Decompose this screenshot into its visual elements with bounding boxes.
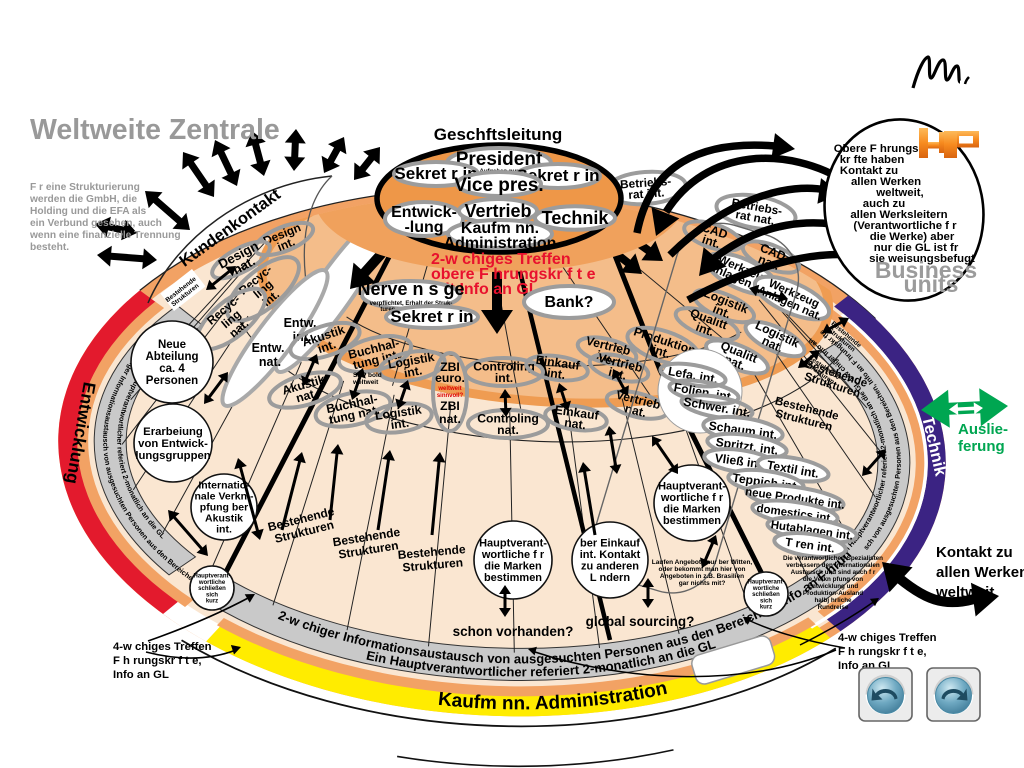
svg-text:Die verantwortlichen Spezialis: Die verantwortlichen Spezialisten <box>783 555 883 562</box>
svg-text:Technik: Technik <box>542 208 610 228</box>
svg-text:L ndern: L ndern <box>590 572 630 584</box>
svg-text:int.: int. <box>495 371 513 385</box>
svg-text:Geschftsleitung: Geschftsleitung <box>434 125 562 144</box>
svg-text:Entwicklung und: Entwicklung und <box>808 583 859 590</box>
svg-text:die Marken: die Marken <box>484 561 542 573</box>
svg-text:Sekret r in: Sekret r in <box>390 307 473 326</box>
svg-text:F r eine Strukturierung: F r eine Strukturierung <box>30 182 140 193</box>
svg-text:Holding und die EFA als: Holding und die EFA als <box>30 206 147 217</box>
svg-text:allen Werken: allen Werken <box>936 564 1024 581</box>
svg-text:Auslie-: Auslie- <box>958 421 1008 438</box>
svg-text:schließen: schließen <box>198 586 226 592</box>
svg-text:F h rungskr f t e,: F h rungskr f t e, <box>838 646 927 658</box>
svg-text:Vice pres.: Vice pres. <box>454 175 543 196</box>
svg-text:weltweit: weltweit <box>935 584 994 601</box>
svg-text:verbessern den internationalen: verbessern den internationalen <box>786 562 880 569</box>
svg-text:F h rungskr f t e,: F h rungskr f t e, <box>113 655 202 667</box>
svg-text:Weltweite Zentrale: Weltweite Zentrale <box>30 114 280 146</box>
svg-text:Personen: Personen <box>146 375 198 387</box>
svg-text:bestimmen: bestimmen <box>663 515 721 527</box>
svg-text:ferung: ferung <box>958 438 1005 455</box>
svg-text:4-w chiges Treffen: 4-w chiges Treffen <box>113 641 212 653</box>
svg-text:4-w chiges Treffen: 4-w chiges Treffen <box>838 632 937 644</box>
svg-text:wortliche: wortliche <box>752 586 780 592</box>
svg-text:ZBI: ZBI <box>440 399 460 413</box>
svg-text:euro.: euro. <box>435 371 465 385</box>
svg-text:int.: int. <box>390 416 410 432</box>
svg-text:Hauptverant-: Hauptverant- <box>479 538 547 550</box>
svg-text:halbj hrliche: halbj hrliche <box>814 597 852 604</box>
svg-text:die Verkn pfung von: die Verkn pfung von <box>803 576 863 583</box>
svg-text:Bank?: Bank? <box>545 294 594 311</box>
svg-text:Hauptverant-: Hauptverant- <box>658 481 726 493</box>
svg-text:wortliche: wortliche <box>198 580 226 586</box>
svg-text:int.: int. <box>216 524 232 536</box>
svg-text:units: units <box>904 271 959 297</box>
svg-text:ber Einkauf: ber Einkauf <box>580 538 640 550</box>
svg-text:nat.: nat. <box>439 412 461 426</box>
svg-text:nat.: nat. <box>563 415 586 432</box>
svg-text:Nerve n s ge: Nerve n s ge <box>357 279 464 299</box>
svg-text:von Entwick-: von Entwick- <box>138 438 208 450</box>
svg-text:nat.: nat. <box>259 355 281 369</box>
svg-text:kurz: kurz <box>206 599 218 605</box>
svg-text:Vertrieb: Vertrieb <box>464 201 531 221</box>
svg-text:Abteilung: Abteilung <box>145 351 198 363</box>
svg-text:sich: sich <box>206 592 218 598</box>
svg-text:lungsgruppen: lungsgruppen <box>135 450 210 462</box>
svg-text:weltweit: weltweit <box>437 386 461 392</box>
svg-text:Produktion-Ausland: Produktion-Ausland <box>803 590 863 597</box>
svg-text:-lung: -lung <box>404 219 443 236</box>
svg-text:int. Kontakt: int. Kontakt <box>580 549 641 561</box>
svg-text:Hauptverant-: Hauptverant- <box>747 580 784 586</box>
svg-text:Kontakt zu: Kontakt zu <box>936 544 1013 561</box>
svg-text:werden die GmbH, die: werden die GmbH, die <box>29 194 137 205</box>
svg-text:sich: sich <box>760 598 772 604</box>
svg-text:kurz: kurz <box>760 605 772 611</box>
svg-text:Austausch und sind auch f r: Austausch und sind auch f r <box>791 569 876 576</box>
svg-text:schließen: schließen <box>752 592 780 598</box>
svg-text:wenn eine finanzielle Trennung: wenn eine finanzielle Trennung <box>29 230 181 241</box>
svg-text:global sourcing?: global sourcing? <box>586 614 695 629</box>
svg-text:besteht.: besteht. <box>30 242 69 253</box>
svg-text:Info an GL: Info an GL <box>113 669 169 681</box>
svg-text:wortliche f r: wortliche f r <box>660 492 724 504</box>
svg-text:ein Verbund gesehen, auch: ein Verbund gesehen, auch <box>30 218 162 229</box>
svg-text:int.: int. <box>546 366 566 382</box>
svg-text:Entw.: Entw. <box>252 341 285 355</box>
svg-text:die Marken: die Marken <box>663 504 721 516</box>
svg-text:gar nichts mit?: gar nichts mit? <box>679 580 726 587</box>
svg-text:zu anderen: zu anderen <box>581 561 639 573</box>
svg-text:Angeboten in z.B. Brasilien: Angeboten in z.B. Brasilien <box>660 573 744 580</box>
svg-text:Erarbeiung: Erarbeiung <box>143 426 203 438</box>
svg-text:Hauptverant-: Hauptverant- <box>193 574 230 580</box>
svg-text:nat.: nat. <box>497 423 519 437</box>
svg-text:ca. 4: ca. 4 <box>159 363 185 375</box>
svg-text:Administration: Administration <box>444 235 557 252</box>
svg-text:Entw.: Entw. <box>284 316 317 330</box>
svg-text:Rundreise: Rundreise <box>818 604 849 611</box>
svg-text:schon vorhanden?: schon vorhanden? <box>453 624 574 639</box>
svg-text:bestimmen: bestimmen <box>484 572 542 584</box>
svg-text:Neue: Neue <box>158 339 186 351</box>
svg-text:wortliche f r: wortliche f r <box>481 549 545 561</box>
